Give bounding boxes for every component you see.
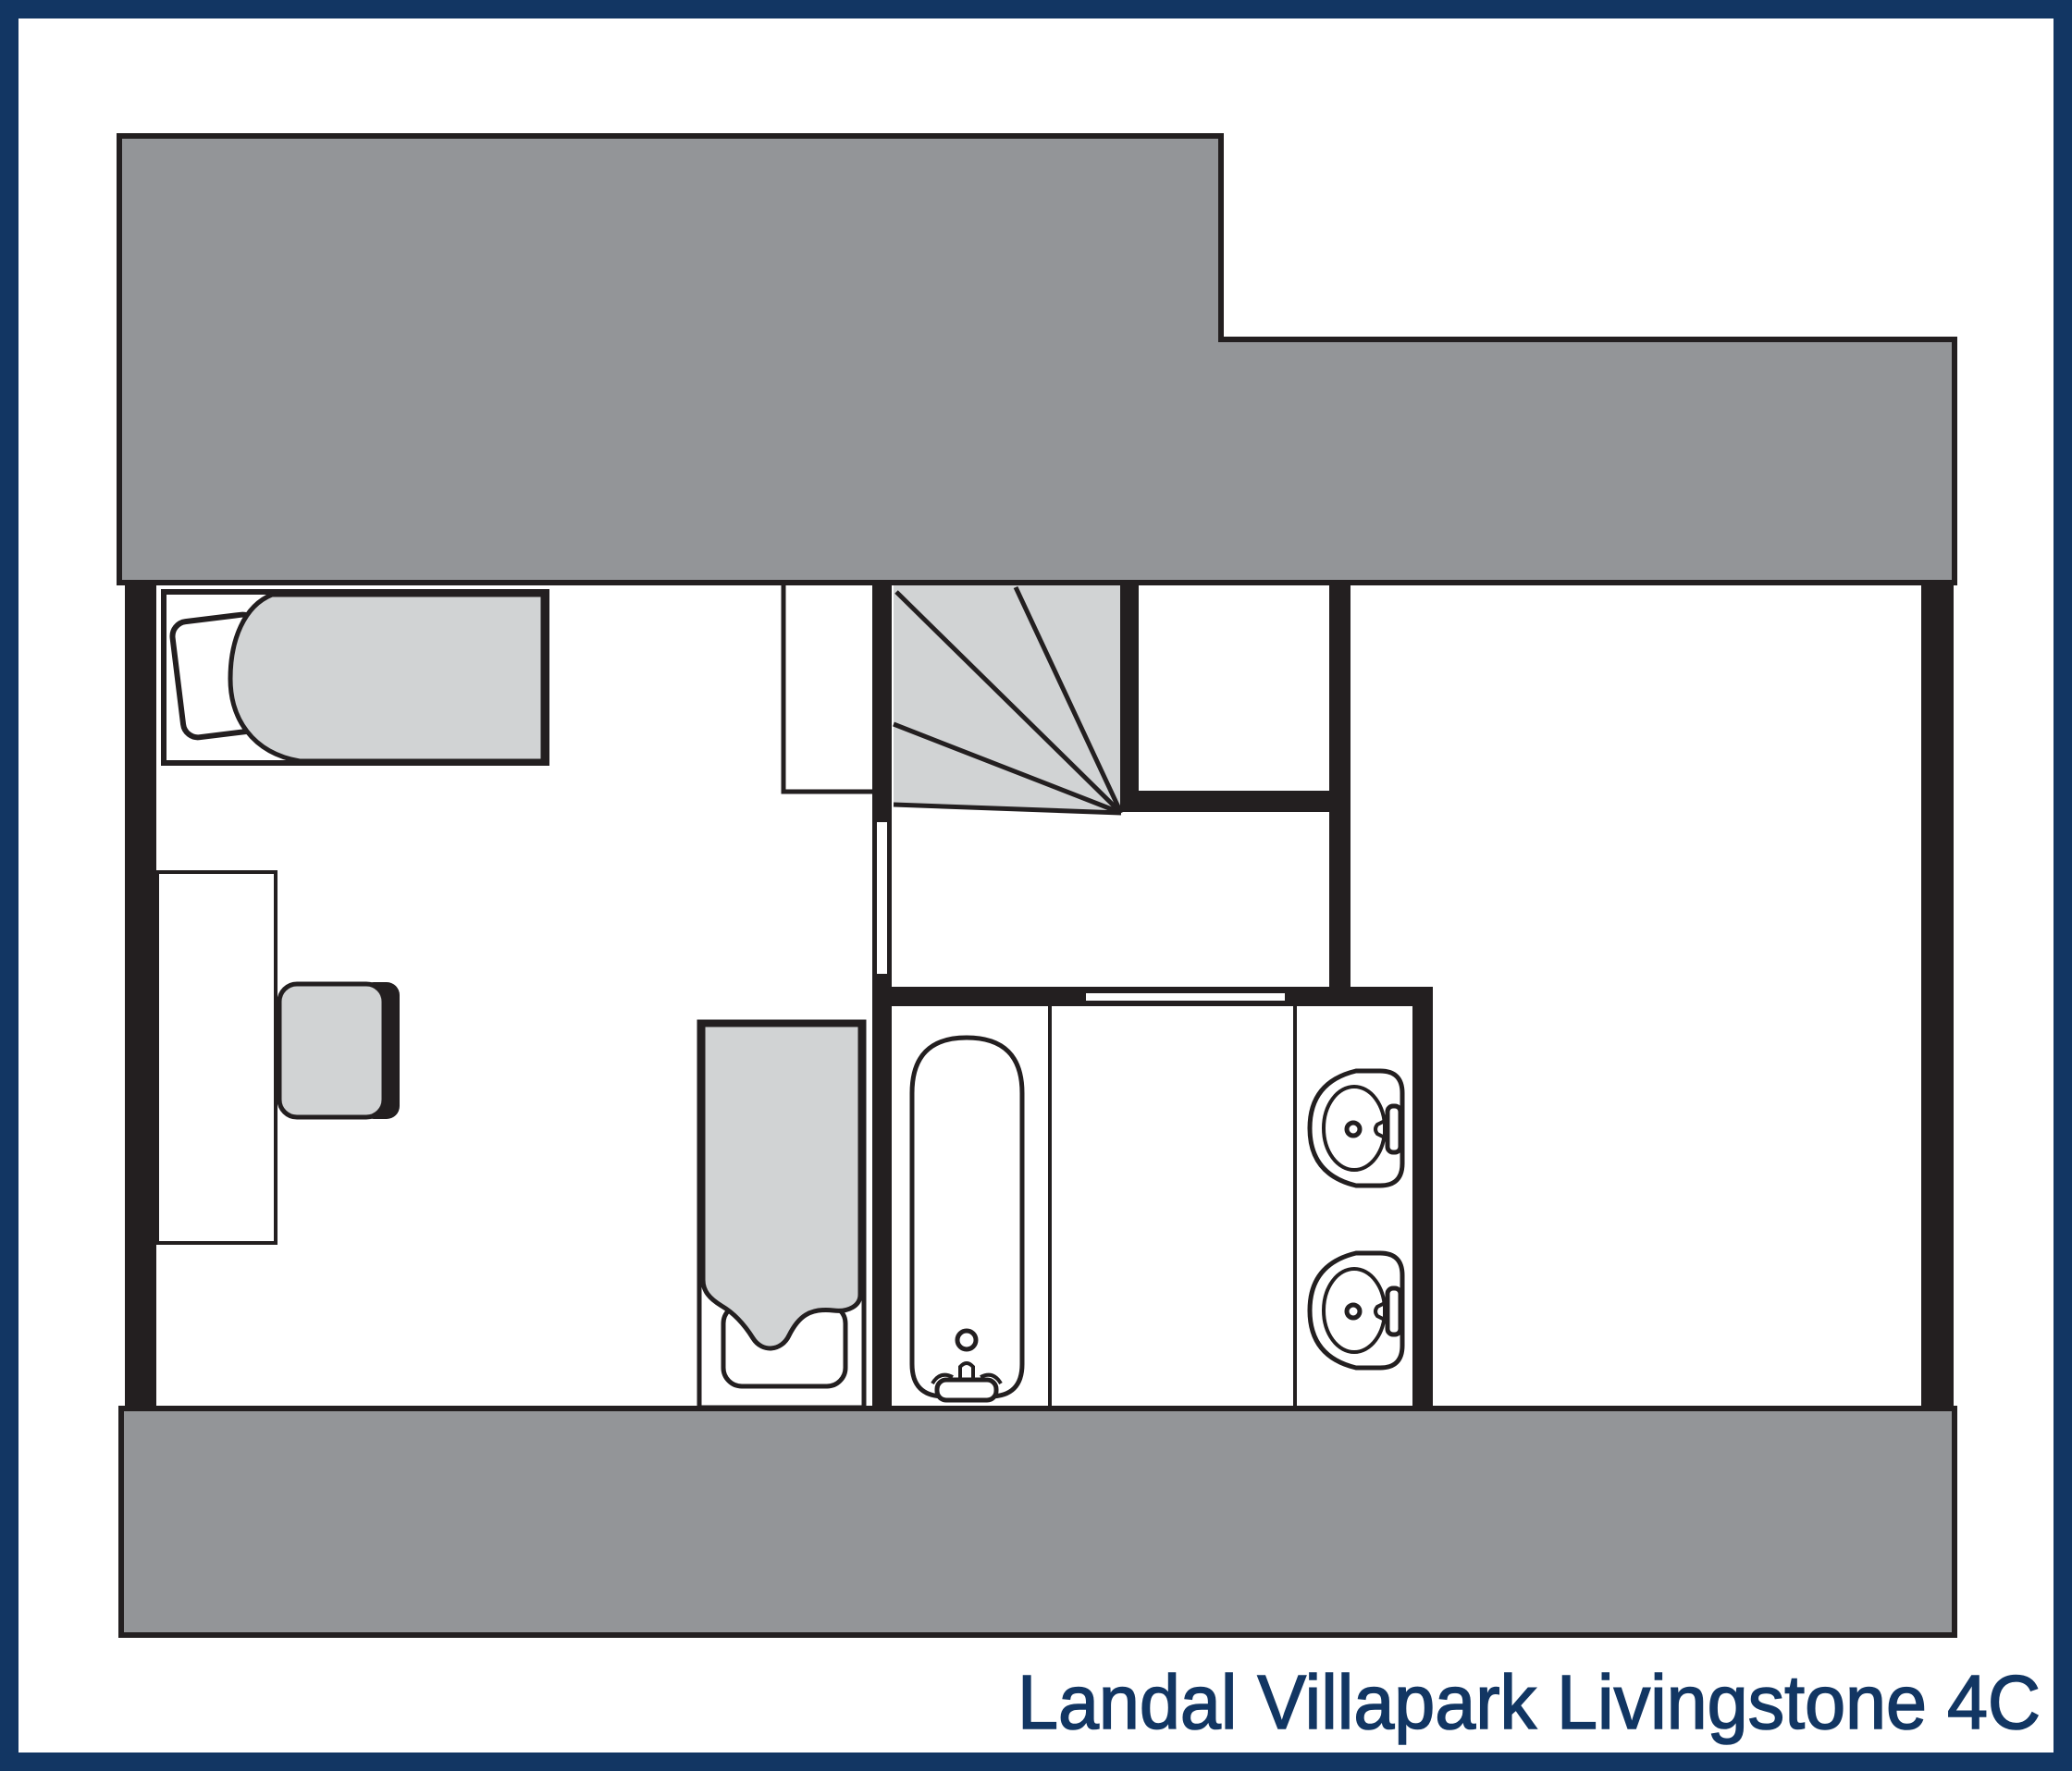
svg-text:Landal Villapark Livingstone 4: Landal Villapark Livingstone 4C	[1017, 1659, 2041, 1745]
